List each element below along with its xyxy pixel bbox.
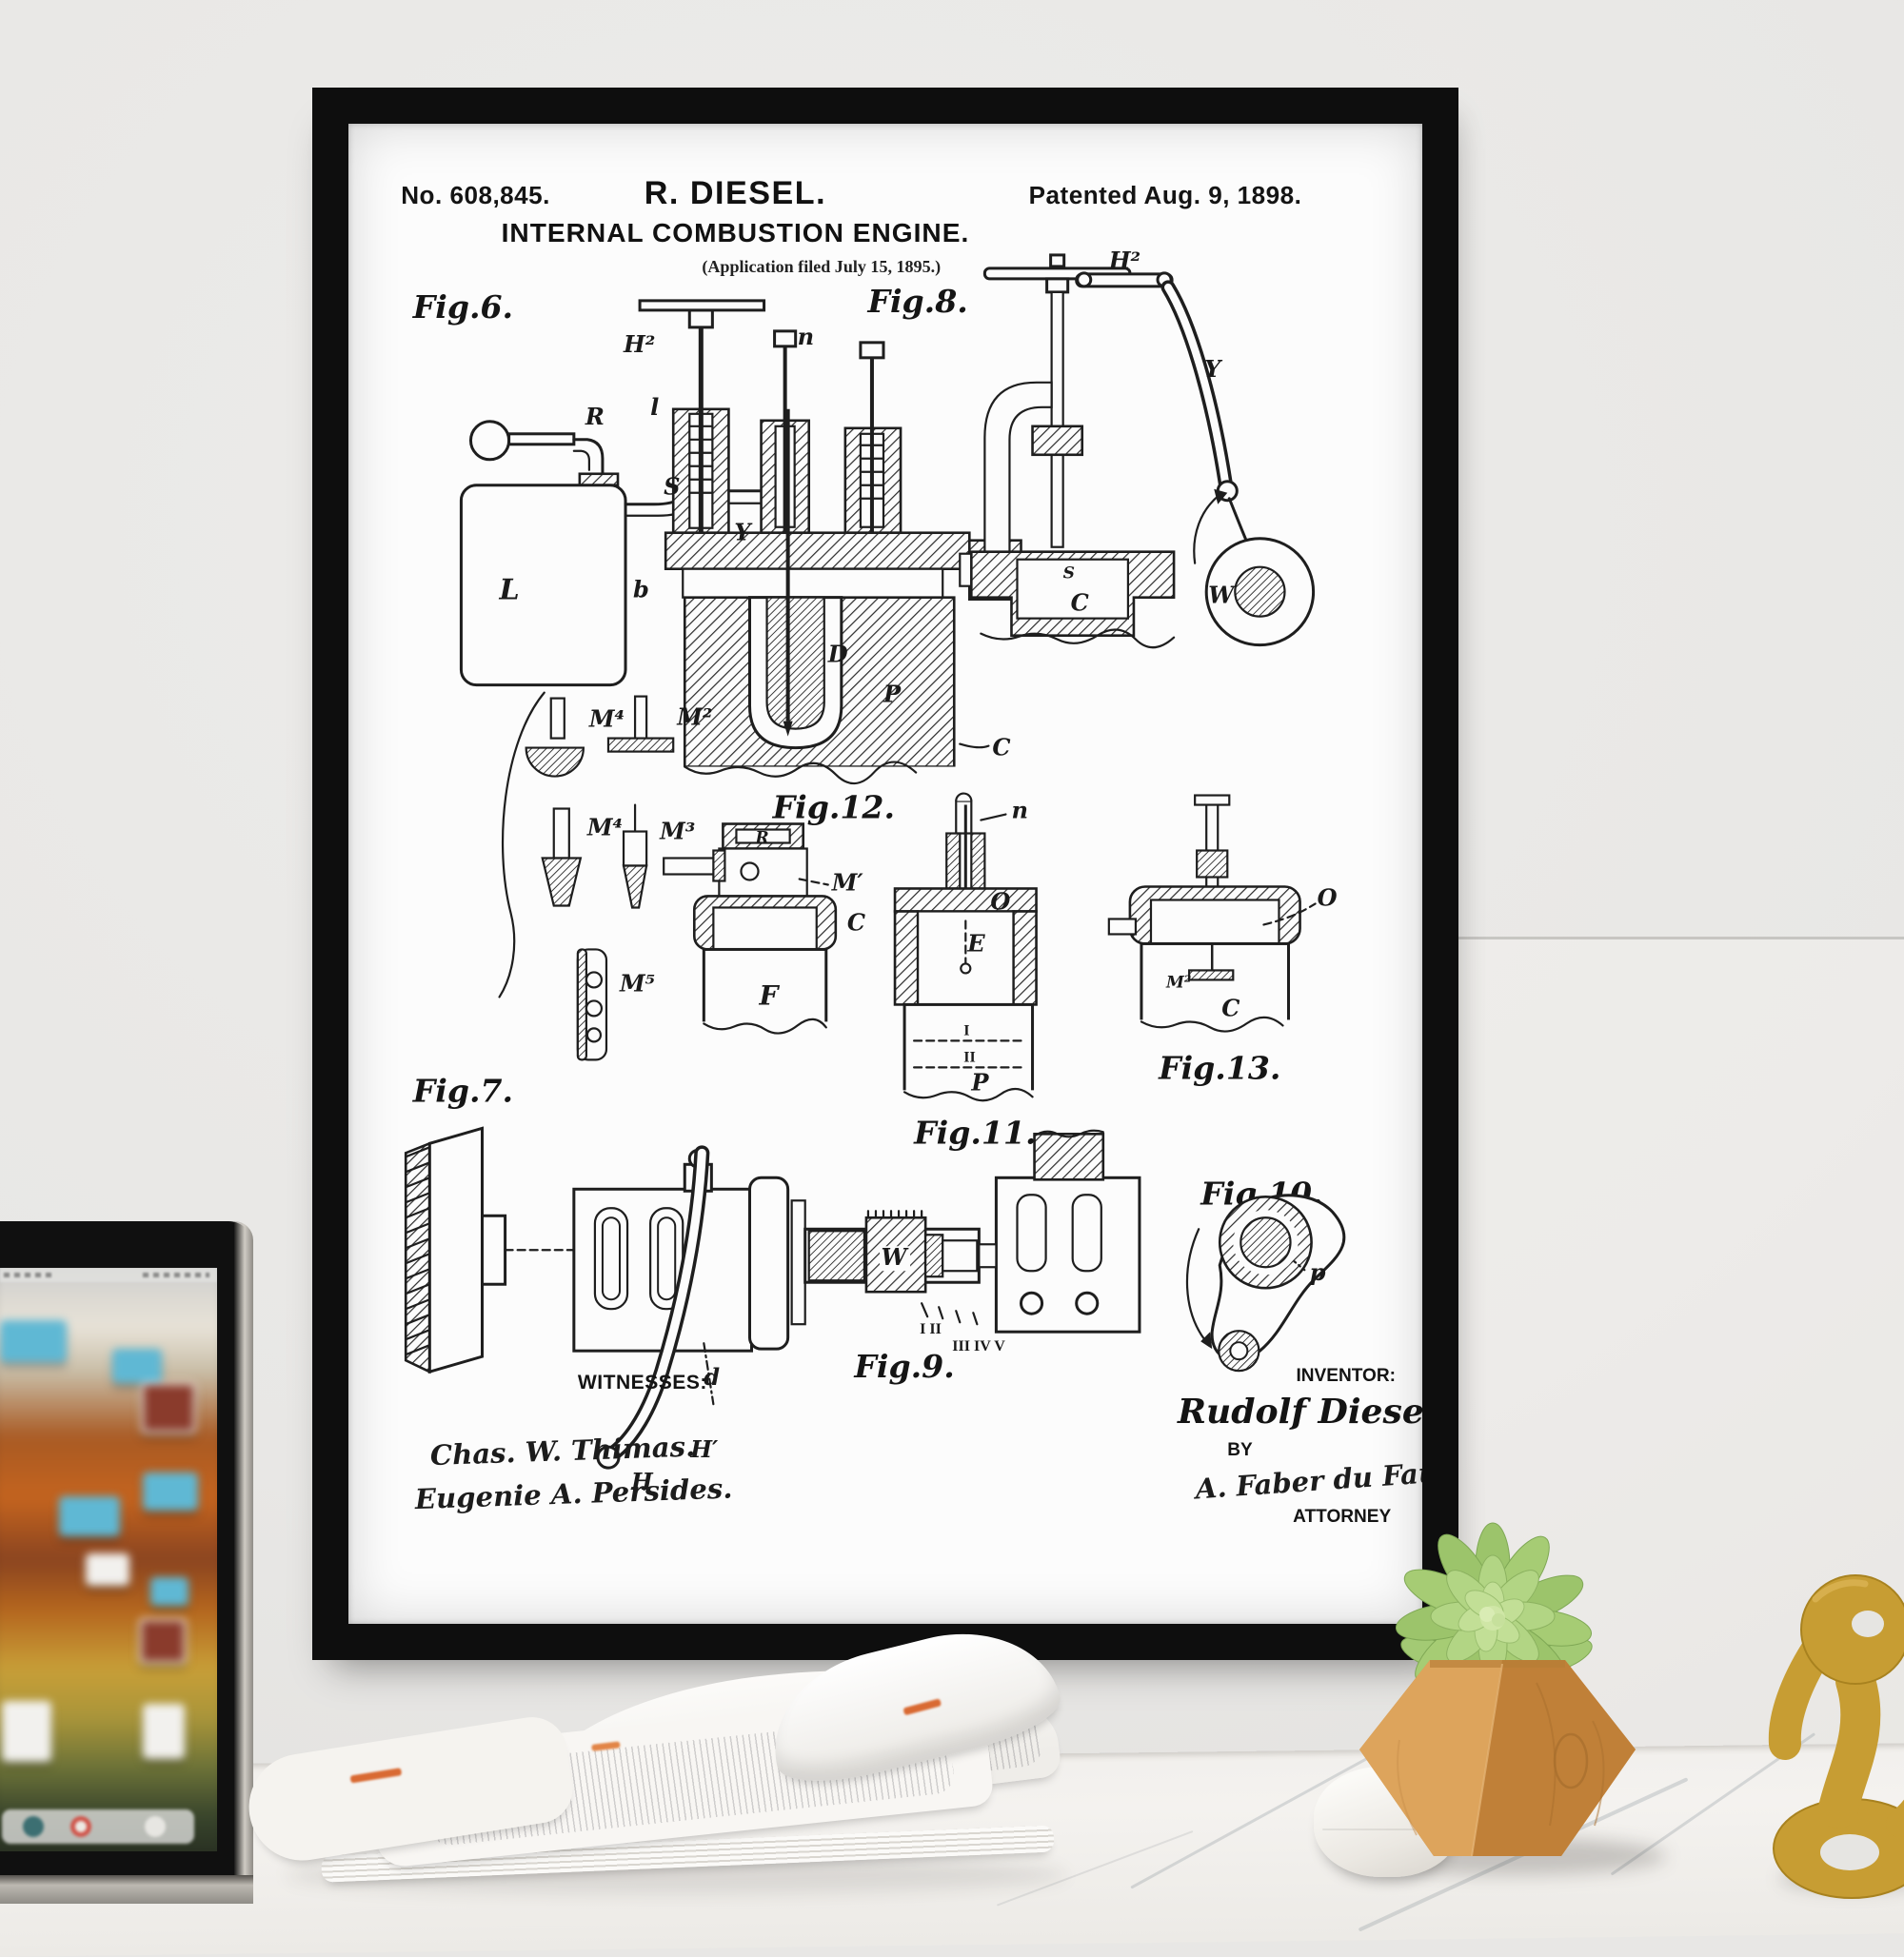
part-label-b: b [633, 576, 649, 603]
nozzle-details: M⁴ M² M⁴ M³ M⁵ [500, 693, 713, 1060]
figure-13-drawing: O M² C Fig.13. [1109, 796, 1338, 1087]
witnesses-label: WITNESSES: [578, 1372, 707, 1394]
desktop-icons [0, 1268, 217, 1851]
fig12-label: Fig.12. [772, 789, 895, 826]
part-label-R: R [755, 829, 769, 848]
t-handle [640, 301, 764, 310]
part-label-I: I [963, 1022, 969, 1038]
part-label-M3: M³ [659, 818, 695, 845]
dock-app-icon [23, 1816, 44, 1837]
part-label-D: D [827, 641, 848, 668]
attorney-signature: A. Faber du Faur [1192, 1455, 1422, 1506]
part-label-l: l [650, 393, 659, 421]
gold-script-ornament [1756, 1540, 1904, 1904]
fig6-label: Fig.6. [412, 288, 513, 326]
part-label-C: C [1221, 994, 1240, 1021]
wooden-hexagon-pot [1359, 1660, 1636, 1856]
support-arch [984, 383, 1051, 552]
part-label-O: O [990, 888, 1010, 916]
figure-10-drawing: Fig.10. p [1187, 1175, 1344, 1371]
patent-paper: No. 608,845. R. DIESEL. Patented Aug. 9,… [348, 124, 1422, 1624]
patent-number: No. 608,845. [401, 181, 550, 209]
ornament-head-hole [1852, 1611, 1884, 1637]
part-label-E: E [966, 929, 985, 957]
part-label-p: p [1310, 1258, 1326, 1286]
part-label-H2: H² [623, 330, 655, 358]
succulent-plant [1350, 1521, 1647, 1868]
laptop-screen [0, 1268, 217, 1851]
part-label-C: C [847, 909, 865, 937]
part-label-W: W [882, 1243, 909, 1271]
succulent-graphic [1350, 1521, 1647, 1868]
fuel-tank [461, 485, 625, 685]
part-label-n: n [1011, 797, 1028, 824]
document-icon [2, 1701, 51, 1762]
folder-icon [143, 1473, 198, 1511]
part-label-M4: M⁴ [586, 814, 623, 841]
part-label-M5: M⁵ [619, 969, 655, 997]
by-label: BY [1227, 1440, 1253, 1460]
patent-title: INTERNAL COMBUSTION ENGINE. [502, 218, 970, 247]
fig11-label: Fig.11. [913, 1114, 1036, 1151]
gold-letter-graphic [1756, 1540, 1904, 1904]
part-label-F: F [759, 979, 781, 1011]
part-label-L: L [499, 574, 520, 607]
part-label-H2: H² [1108, 247, 1140, 274]
laptop-hinge-base [0, 1875, 253, 1904]
trash-icon [145, 1816, 166, 1837]
part-label-C: C [992, 734, 1010, 761]
part-label-S: S [1063, 564, 1075, 583]
rotation-arrow [1200, 1332, 1212, 1349]
bevel-gear [429, 1128, 482, 1372]
ornament-arm [1785, 1652, 1815, 1744]
menu-bar [0, 1268, 217, 1282]
part-label-roman-b: III IV V [952, 1338, 1005, 1354]
photo-icon [141, 1382, 196, 1433]
part-label-S: S [664, 473, 680, 501]
fig7-label: Fig.7. [412, 1072, 513, 1109]
part-label-P: P [970, 1068, 989, 1096]
ornament-bottom-hole [1820, 1834, 1879, 1870]
part-label-n: n [798, 323, 815, 350]
witness-signature-2: Eugenie A. Persides. [413, 1473, 733, 1516]
side-pipe [1109, 919, 1136, 934]
part-label-M2: M² [676, 703, 712, 731]
part-label-C: C [1071, 589, 1089, 617]
folder-icon [0, 1320, 67, 1362]
inventor-label: INVENTOR: [1296, 1366, 1395, 1386]
brace-curve [500, 693, 545, 998]
part-label-M4: M⁴ [588, 705, 625, 733]
ornament-body [1838, 1681, 1860, 1809]
patent-header: No. 608,845. R. DIESEL. Patented Aug. 9,… [401, 175, 1301, 277]
fig9-label: Fig.9. [853, 1348, 954, 1385]
part-label-Y: Y [1204, 355, 1223, 383]
part-label-R: R [585, 403, 605, 430]
status-icons [143, 1273, 209, 1277]
cylinder-body [1141, 943, 1289, 1033]
folder-icon [150, 1577, 188, 1606]
document-icon [143, 1704, 185, 1759]
folder-icon [112, 1349, 162, 1383]
signature-block: WITNESSES: Chas. W. Thimas. Eugenie A. P… [413, 1366, 1422, 1527]
dock [2, 1809, 194, 1844]
laptop [0, 1221, 253, 1904]
photo-icon [139, 1618, 187, 1664]
patent-date: Patented Aug. 9, 1898. [1029, 181, 1302, 209]
part-label-roman-a: I II [920, 1321, 942, 1337]
part-label-P: P [883, 681, 902, 708]
part-label-Y: Y [734, 519, 753, 546]
ball-handle [470, 422, 508, 460]
figure-6-drawing: Fig.6. [412, 288, 1027, 796]
fig13-label: Fig.13. [1158, 1049, 1280, 1086]
part-label-O: O [1318, 884, 1338, 912]
dock-app-icon [70, 1816, 91, 1837]
newspaper-stack [236, 1647, 1097, 1911]
ornament-head [1801, 1575, 1904, 1684]
figure-11-drawing: n O E I II P Fig.11. [895, 794, 1037, 1152]
document-icon [86, 1553, 129, 1586]
inventor-signature: Rudolf Diesel, [1177, 1391, 1422, 1432]
picture-frame: No. 608,845. R. DIESEL. Patented Aug. 9,… [312, 88, 1458, 1660]
threaded-section [809, 1231, 864, 1280]
part-label-M2: M² [1165, 973, 1191, 992]
application-line: (Application filed July 15, 1895.) [702, 257, 941, 277]
witness-signature-1: Chas. W. Thimas. [429, 1431, 695, 1473]
pot-rim [1430, 1660, 1565, 1668]
part-label-W: W [1208, 582, 1236, 609]
menu-items [4, 1273, 55, 1277]
part-label-M1: M′ [831, 869, 864, 897]
folder-icon [59, 1496, 120, 1536]
figure-12-drawing: Fig.12. R M′ C F Fig.7. [412, 789, 895, 1110]
patent-print: No. 608,845. R. DIESEL. Patented Aug. 9,… [348, 124, 1422, 1624]
fig8-label: Fig.8. [866, 283, 967, 320]
patent-inventor-title: R. DIESEL. [645, 175, 826, 211]
part-label-II: II [963, 1049, 975, 1065]
